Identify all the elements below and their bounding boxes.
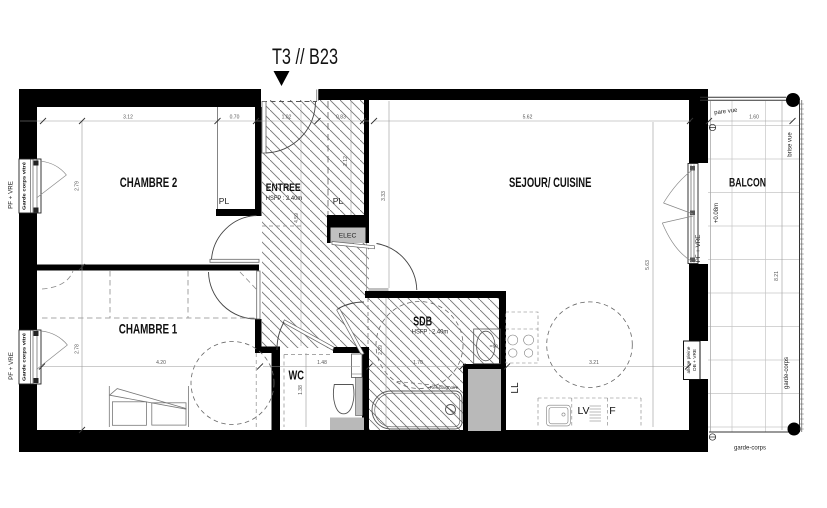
- svg-text:WC: WC: [288, 368, 304, 383]
- svg-text:Garde corps vitré: Garde corps vitré: [22, 333, 28, 381]
- svg-text:SEJOUR/ CUISINE: SEJOUR/ CUISINE: [509, 175, 592, 190]
- svg-text:LL: LL: [510, 382, 521, 394]
- svg-text:PL: PL: [219, 196, 230, 206]
- svg-text:1.48: 1.48: [317, 360, 327, 366]
- svg-text:2.39: 2.39: [378, 345, 384, 355]
- svg-text:1.70: 1.70: [413, 360, 423, 366]
- svg-text:5.62: 5.62: [523, 115, 533, 121]
- svg-text:OB + VRE: OB + VRE: [692, 349, 698, 371]
- svg-text:brise vue: brise vue: [788, 132, 794, 157]
- svg-text:+0.08m: +0.08m: [714, 203, 720, 223]
- svg-text:LV: LV: [577, 405, 589, 417]
- svg-text:CHAMBRE 2: CHAMBRE 2: [120, 175, 178, 190]
- svg-text:3.12: 3.12: [123, 115, 133, 121]
- svg-text:3.21: 3.21: [589, 360, 599, 366]
- svg-text:Rés-baignoire: Rés-baignoire: [430, 385, 459, 390]
- svg-text:F: F: [609, 405, 615, 417]
- svg-text:BALCON: BALCON: [729, 176, 766, 190]
- svg-text:T3 // B23: T3 // B23: [272, 44, 338, 69]
- svg-text:allège pleine: allège pleine: [686, 346, 692, 373]
- svg-text:1.38: 1.38: [298, 385, 304, 395]
- svg-text:HSFP : 2.40m: HSFP : 2.40m: [412, 329, 449, 336]
- svg-text:PF + VRE: PF + VRE: [8, 352, 15, 380]
- svg-text:1.60: 1.60: [749, 115, 759, 121]
- svg-text:5.63: 5.63: [645, 260, 651, 270]
- svg-text:ENTREE: ENTREE: [266, 182, 301, 194]
- svg-text:HSFP : 2.40m: HSFP : 2.40m: [266, 195, 303, 202]
- svg-text:4.20: 4.20: [156, 360, 166, 366]
- svg-text:2.79: 2.79: [75, 181, 81, 191]
- svg-text:garde-corps: garde-corps: [734, 446, 766, 452]
- svg-text:garde-corps: garde-corps: [784, 357, 790, 389]
- svg-text:CHAMBRE 1: CHAMBRE 1: [119, 322, 178, 337]
- svg-text:PF + VRE: PF + VRE: [8, 181, 15, 209]
- svg-text:2.12: 2.12: [343, 156, 349, 166]
- svg-text:2.78: 2.78: [75, 344, 81, 354]
- svg-text:4.59: 4.59: [294, 213, 300, 223]
- svg-text:≃90: ≃90: [489, 344, 498, 349]
- svg-text:Garde corps vitré: Garde corps vitré: [22, 162, 28, 210]
- svg-text:0.83: 0.83: [336, 115, 346, 121]
- svg-text:PL: PL: [333, 196, 344, 206]
- svg-text:3.33: 3.33: [381, 191, 387, 201]
- svg-text:ELEC: ELEC: [339, 233, 357, 240]
- svg-text:0.70: 0.70: [230, 115, 240, 121]
- svg-text:1.02: 1.02: [282, 115, 292, 121]
- svg-text:8.21: 8.21: [774, 271, 780, 281]
- svg-text:SDB: SDB: [413, 314, 432, 329]
- svg-text:PF + VRE: PF + VRE: [695, 235, 702, 263]
